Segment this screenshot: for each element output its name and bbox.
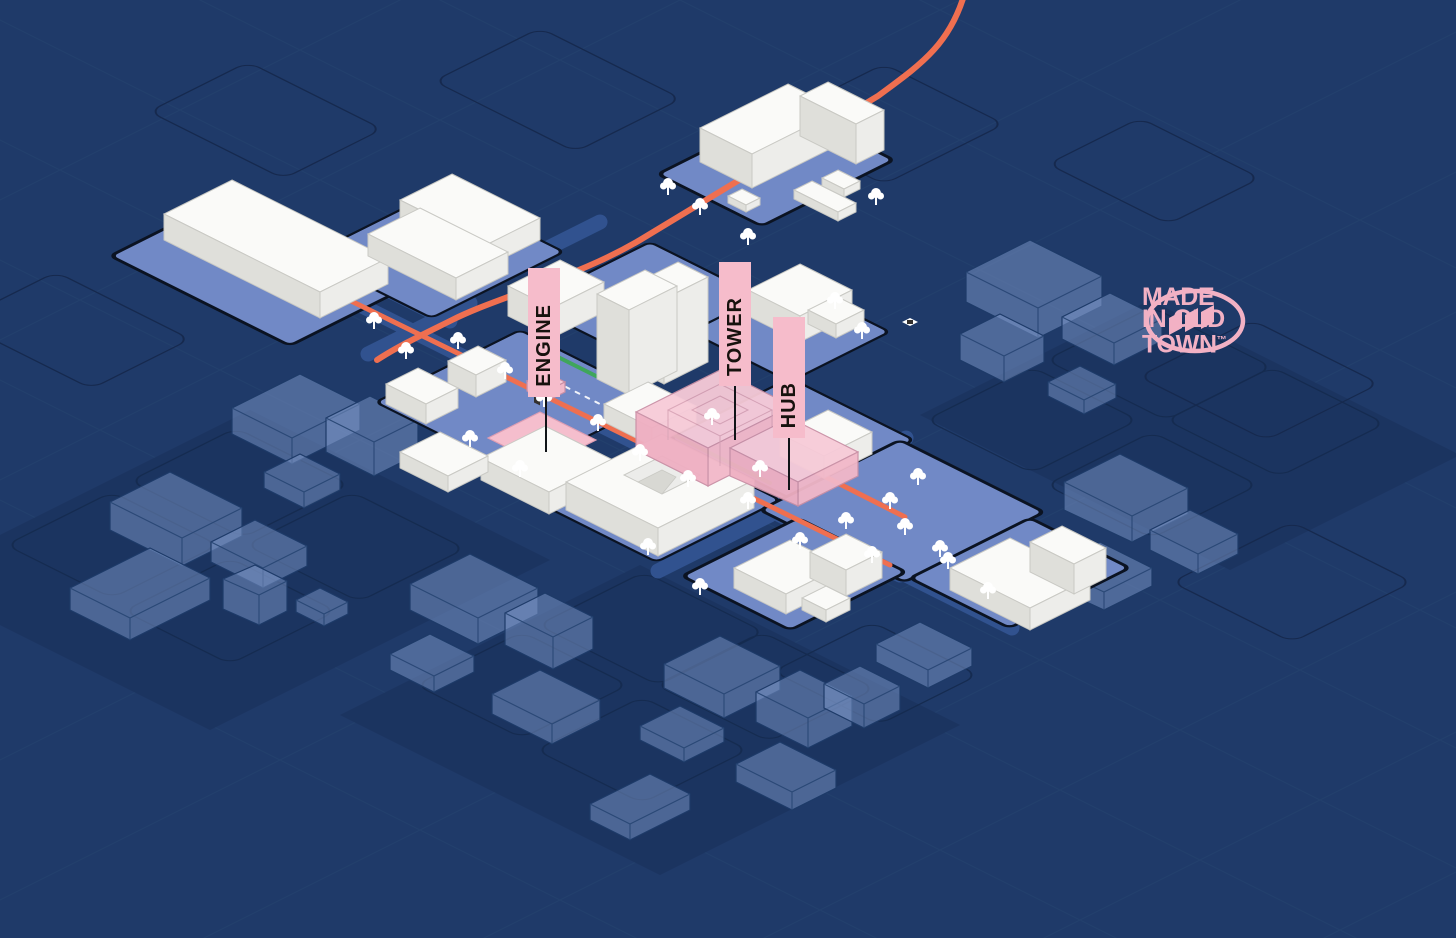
label-tower: TOWER <box>719 262 751 386</box>
label-hub-text: HUB <box>778 382 801 428</box>
label-tower-text: TOWER <box>724 297 747 376</box>
logo-zigzag-icon <box>1142 286 1248 356</box>
made-in-old-town-poster: ENGINE TOWER HUB MADE IN OLD TOWN™ <box>0 0 1456 938</box>
made-in-old-town-logo: MADE IN OLD TOWN™ <box>1142 286 1227 355</box>
label-engine-text: ENGINE <box>533 304 556 387</box>
old-town-isometric-map <box>0 0 1456 938</box>
small-sign-marker <box>902 318 918 326</box>
label-hub: HUB <box>773 317 805 438</box>
twin-tower-left <box>597 270 677 395</box>
label-engine: ENGINE <box>528 268 560 397</box>
